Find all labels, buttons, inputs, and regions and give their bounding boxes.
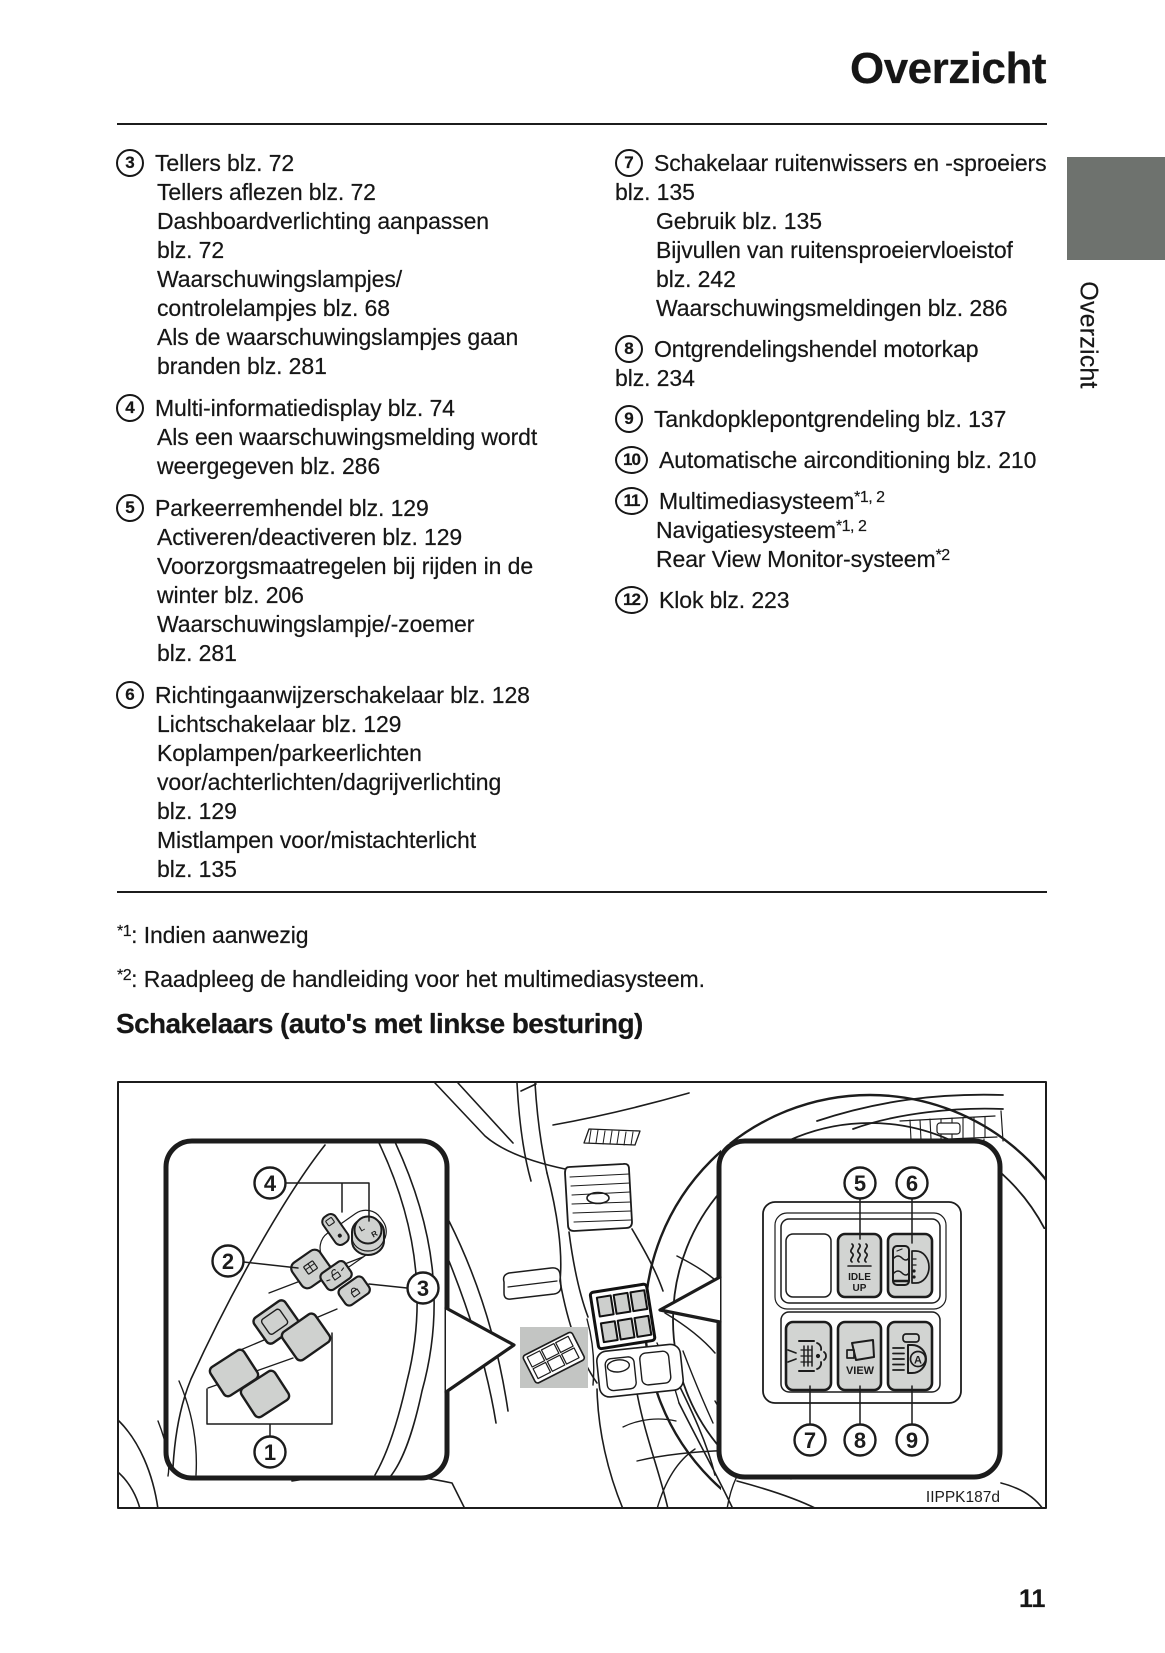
svg-text:A: A: [914, 1355, 922, 1367]
svg-text:IDLE: IDLE: [848, 1272, 871, 1283]
svg-text:UP: UP: [853, 1283, 867, 1294]
svg-text:1: 1: [264, 1440, 276, 1465]
svg-text:6: 6: [906, 1171, 918, 1196]
svg-text:2: 2: [222, 1249, 234, 1274]
svg-text:7: 7: [804, 1428, 816, 1453]
svg-text:3: 3: [417, 1276, 429, 1301]
svg-text:IIPPK187d: IIPPK187d: [926, 1489, 1000, 1506]
svg-text:8: 8: [854, 1428, 866, 1453]
svg-text:VIEW: VIEW: [846, 1365, 875, 1377]
svg-text:4: 4: [264, 1171, 277, 1196]
svg-text:5: 5: [854, 1171, 866, 1196]
svg-text:9: 9: [906, 1428, 918, 1453]
